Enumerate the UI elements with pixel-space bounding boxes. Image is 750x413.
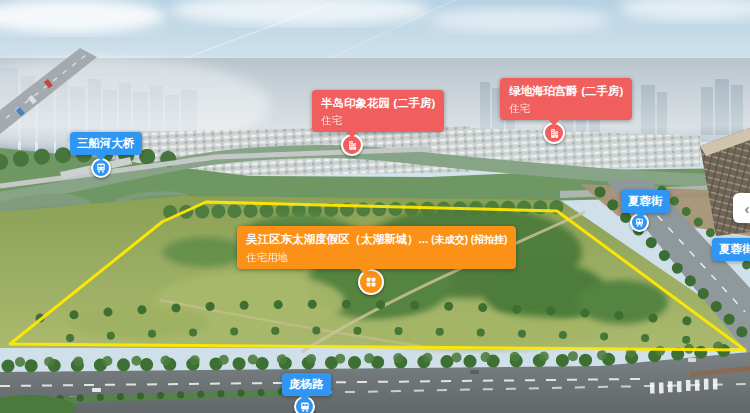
bubble-pointer [95, 154, 107, 161]
building-icon [346, 139, 359, 152]
estate-label-bandao[interactable]: 半岛印象花园 (二手房) 住宅 [312, 90, 444, 132]
building-icon [548, 127, 561, 140]
transit-label-text: 三船河大桥 [77, 137, 135, 149]
map-viewport[interactable]: 半岛印象花园 (二手房) 住宅 绿地海珀宫爵 (二手房) 住宅 吴江区东太湖度假… [0, 0, 750, 413]
transit-label-sanchuanhe-bridge[interactable]: 三船河大桥 [70, 132, 142, 155]
parcel-title: 吴江区东太湖度假区（太湖新城）... [246, 233, 428, 245]
bus-icon [95, 162, 107, 174]
bubble-pointer [548, 119, 560, 126]
bubble-pointer [299, 395, 311, 402]
transit-label-xiarong-street[interactable]: 夏蓉街 [621, 190, 670, 213]
transit-label-text: 夏蓉街 [628, 195, 663, 207]
parcel-subtitle: 住宅用地 [246, 251, 507, 263]
estate-title: 半岛印象花园 (二手房) [321, 96, 435, 110]
estate-subtitle: 住宅 [321, 114, 435, 126]
parcel-status: (未成交) (招拍挂) [431, 234, 507, 245]
bubble-pointer [635, 212, 647, 219]
land-grid-icon [364, 275, 378, 289]
chevron-left-icon: ‹ [745, 200, 750, 217]
parcel-label[interactable]: 吴江区东太湖度假区（太湖新城）... (未成交) (招拍挂) 住宅用地 [237, 226, 516, 269]
transit-label-text: 庞杨路 [289, 378, 324, 390]
estate-subtitle: 住宅 [509, 102, 623, 114]
bubble-pointer [346, 131, 358, 138]
bubble-pointer [359, 268, 371, 275]
transit-label-xiarong-street-stop[interactable]: 夏蓉街庞 [712, 238, 750, 261]
bus-icon [299, 401, 311, 413]
transit-label-text: 夏蓉街庞 [719, 243, 750, 255]
expand-panel-button[interactable]: ‹ [733, 193, 750, 223]
estate-title: 绿地海珀宫爵 (二手房) [509, 84, 623, 98]
bus-marker-sanchuanhe[interactable] [91, 158, 111, 178]
estate-label-lvdi[interactable]: 绿地海珀宫爵 (二手房) 住宅 [500, 78, 632, 120]
transit-label-pangyang-road[interactable]: 庞杨路 [282, 373, 331, 396]
